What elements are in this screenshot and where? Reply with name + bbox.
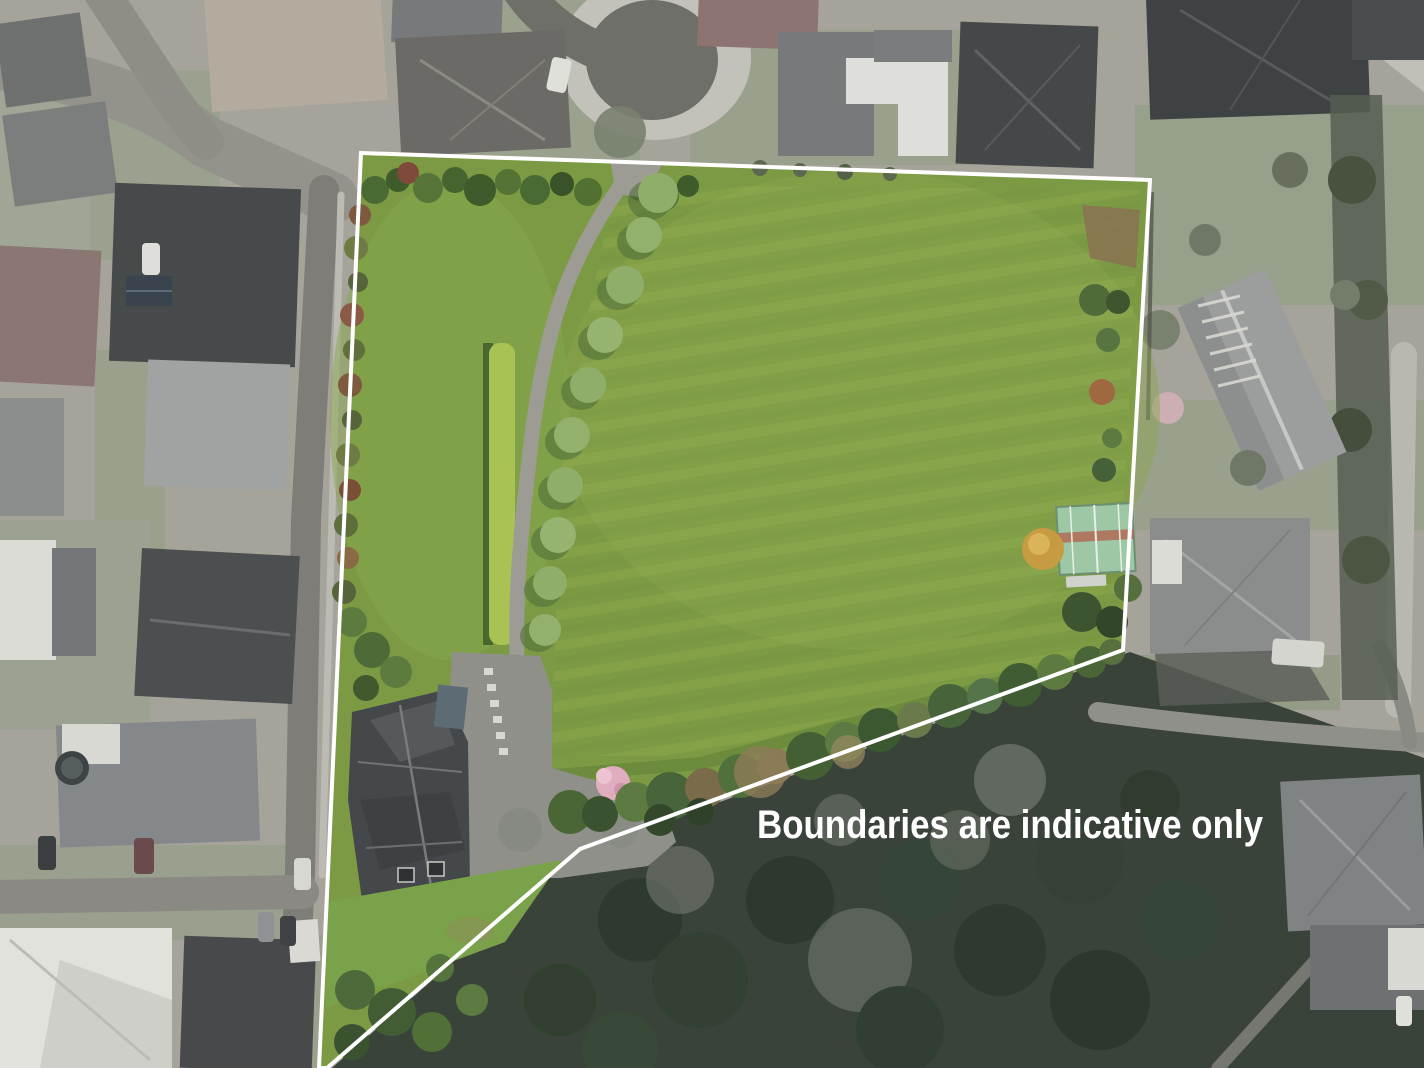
car	[294, 858, 311, 890]
caravan	[1271, 638, 1325, 668]
boundary-disclaimer-text: Boundaries are indicative only	[757, 803, 1264, 847]
car	[1396, 996, 1412, 1026]
car	[258, 912, 274, 942]
street-bottom-left	[0, 892, 302, 897]
car	[134, 838, 154, 874]
car	[142, 243, 160, 275]
aerial-photo-canvas: Boundaries are indicative only	[0, 0, 1424, 1068]
car	[38, 836, 56, 870]
road-east	[1398, 355, 1404, 705]
aerial-photo: Boundaries are indicative only	[0, 0, 1424, 1068]
car	[280, 916, 296, 946]
